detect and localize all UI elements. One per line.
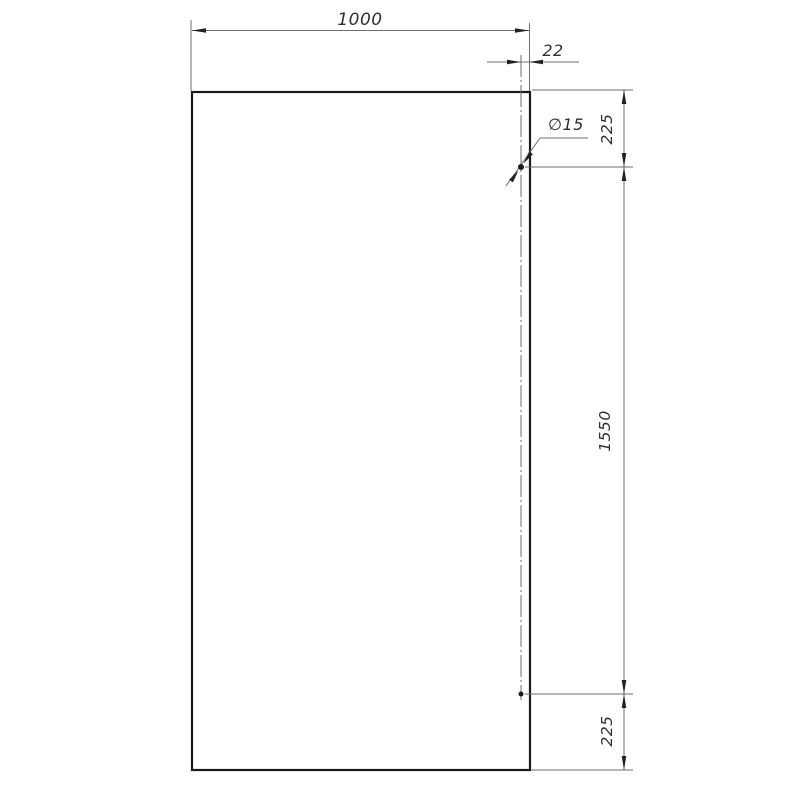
arrow-width-left — [192, 28, 206, 33]
arrow-hole-bottom-up — [622, 694, 627, 708]
bottom-offset-dimension-label: 225 — [598, 715, 616, 746]
panel-rectangle — [192, 92, 530, 770]
edge-offset-dimension-label: 22 — [542, 41, 563, 60]
arrow-offset-right — [529, 60, 543, 65]
dimension-drawing-svg: 1000 22 ∅15 225 1550 225 — [0, 0, 800, 800]
arrow-offset-left — [507, 60, 521, 65]
dimension-labels-group: 1000 22 ∅15 225 1550 225 — [337, 10, 616, 747]
top-hole-dot — [518, 164, 524, 170]
arrow-spacing-bottom-down — [622, 680, 627, 694]
arrow-spacing-top-up — [622, 167, 627, 181]
technical-drawing-canvas: 1000 22 ∅15 225 1550 225 — [0, 0, 800, 800]
arrowheads-group — [192, 28, 626, 770]
arrow-chain-top-up — [622, 90, 627, 104]
top-offset-dimension-label: 225 — [598, 113, 616, 144]
hole-diameter-label: ∅15 — [548, 115, 584, 134]
arrow-leader-lower — [509, 171, 518, 183]
width-dimension-label: 1000 — [337, 10, 382, 30]
arrow-width-right — [515, 28, 529, 33]
bottom-hole-dot — [519, 692, 524, 697]
hole-spacing-dimension-label: 1550 — [596, 410, 614, 451]
panel-outline-group — [192, 92, 530, 770]
arrow-hole-top-down — [622, 153, 627, 167]
arrow-chain-bottom-down — [622, 756, 627, 770]
arrow-leader-upper — [524, 152, 533, 164]
